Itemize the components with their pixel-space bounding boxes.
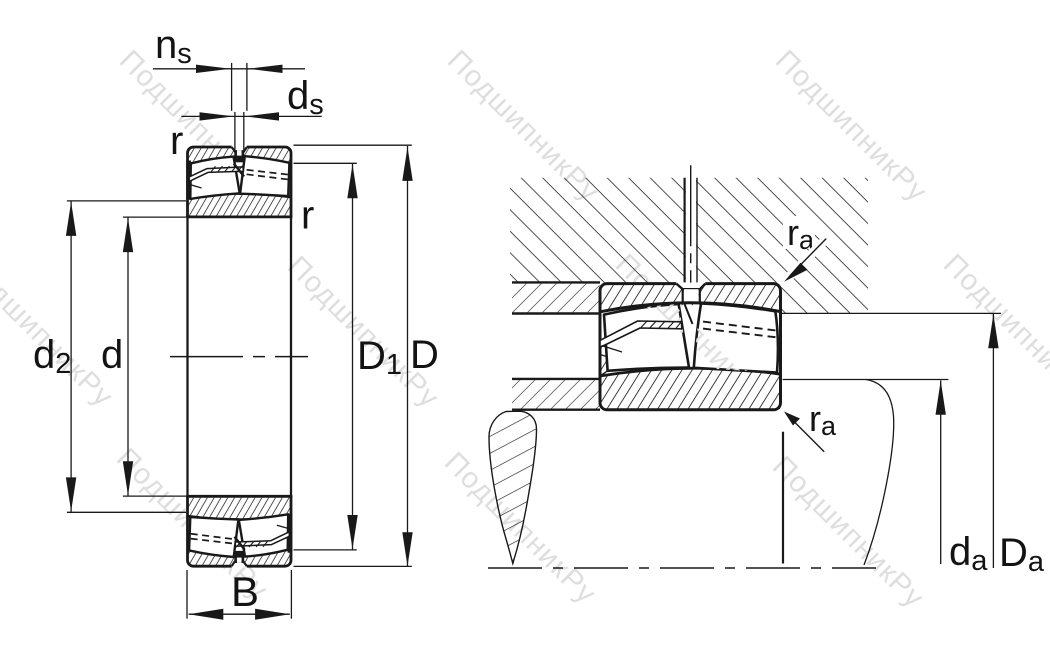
svg-text:d: d — [101, 333, 123, 377]
svg-text:B: B — [231, 568, 259, 615]
svg-text:D: D — [410, 333, 439, 377]
svg-text:r: r — [170, 119, 183, 163]
svg-text:r: r — [301, 194, 314, 238]
